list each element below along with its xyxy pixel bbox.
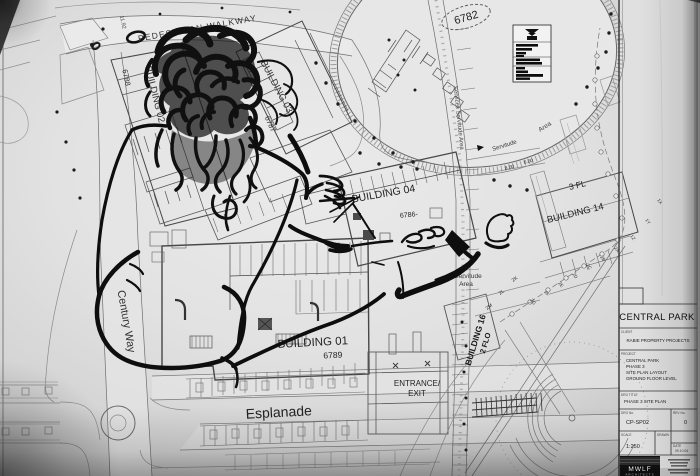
svg-text:1:250: 1:250 [626, 444, 640, 450]
svg-text:DRG TITLE: DRG TITLE [621, 393, 638, 397]
svg-text:6789: 6789 [323, 350, 343, 361]
svg-text:CLIENT: CLIENT [621, 330, 632, 334]
svg-text:EXIT: EXIT [408, 389, 426, 398]
svg-text:SCALE: SCALE [621, 433, 631, 437]
svg-text:ENTRANCE/: ENTRANCE/ [394, 379, 441, 388]
svg-text:PROJECT: PROJECT [621, 352, 636, 356]
svg-text:Area: Area [459, 281, 473, 288]
svg-text:DRG No.: DRG No. [621, 411, 634, 415]
